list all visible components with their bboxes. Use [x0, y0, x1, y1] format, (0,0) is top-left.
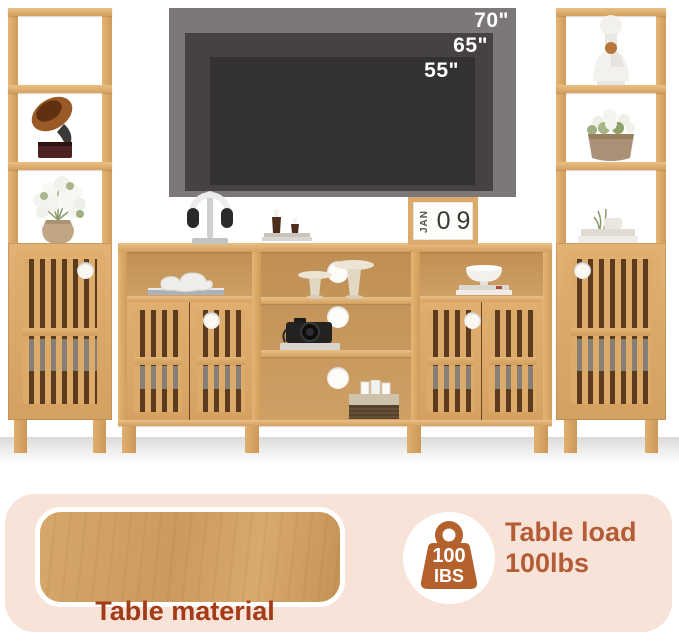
door-handle-hole: [203, 312, 220, 329]
pedestal-stands-decor: [291, 257, 381, 299]
calendar-day-digit: 0: [437, 207, 451, 236]
headphones-decor: [186, 181, 234, 244]
console-left-doors: [127, 302, 252, 420]
console-shelf: [261, 350, 411, 357]
weight-badge: 100 IBS: [403, 512, 495, 604]
candles-decor: [262, 203, 312, 245]
tower-shelf: [556, 85, 666, 93]
calendar-month: JAN: [419, 209, 430, 232]
tower-shelf: [556, 162, 666, 170]
info-banner: Table material 100 IBS Table load 100lbs: [5, 494, 672, 632]
bowl-decor: [456, 262, 512, 296]
tv-layer-55: 55": [210, 57, 475, 185]
wood-material-swatch: [35, 507, 345, 607]
table-load-text: Table load 100lbs: [505, 517, 637, 579]
cabinet-door: [127, 302, 189, 420]
tower-shelf: [8, 8, 112, 16]
console-leg: [534, 426, 548, 453]
tv-console: [118, 243, 552, 453]
console-top: [118, 243, 552, 252]
table-load-line2: 100lbs: [505, 548, 637, 579]
tower-cabinet: [556, 243, 666, 420]
abstract-sculpture-decor: [148, 269, 224, 295]
console-leg: [407, 426, 421, 453]
cabinet-door: [563, 250, 659, 413]
table-load-line1: Table load: [505, 517, 637, 548]
calendar-day-digit: 9: [457, 207, 471, 236]
tower-leg: [93, 420, 106, 453]
console-leg: [122, 426, 136, 453]
cabinet-door: [15, 250, 105, 413]
tower-post: [102, 8, 112, 243]
door-slats: [571, 259, 651, 404]
door-handle-hole: [464, 312, 481, 329]
tower-post: [556, 8, 566, 243]
product-image: 70" 65" 55": [0, 0, 679, 644]
book-stack-decor: [576, 205, 640, 243]
calendar-decor: JAN 0 9: [408, 197, 478, 245]
left-bookshelf-tower: [8, 8, 112, 453]
camera-decor: [280, 314, 340, 351]
tower-leg: [14, 420, 27, 453]
tower-leg: [645, 420, 658, 453]
tv-size-label-55: 55": [424, 59, 459, 83]
door-handle-hole: [77, 262, 94, 279]
storage-basket-decor: [343, 380, 405, 420]
cabinet-door: [482, 302, 543, 420]
flower-vase-decor: [22, 168, 94, 244]
tv-size-label-70: 70": [474, 9, 509, 33]
door-handle-hole: [574, 262, 591, 279]
right-bookshelf-tower: [556, 8, 666, 453]
potted-plant-decor: [578, 108, 644, 162]
weight-badge-value: 100: [403, 546, 495, 566]
console-leg: [245, 426, 259, 453]
cabinet-door: [190, 302, 252, 420]
tower-cabinet: [8, 243, 112, 420]
console-right-doors: [420, 302, 543, 420]
tower-post: [8, 8, 18, 243]
tower-post: [656, 8, 666, 243]
tv-size-label-65: 65": [453, 34, 488, 58]
bust-statue-decor: [588, 13, 634, 85]
tower-leg: [564, 420, 577, 453]
door-slats: [23, 259, 97, 404]
material-label: Table material: [30, 596, 340, 627]
gramophone-decor: [26, 92, 84, 160]
weight-badge-unit: IBS: [403, 567, 495, 585]
